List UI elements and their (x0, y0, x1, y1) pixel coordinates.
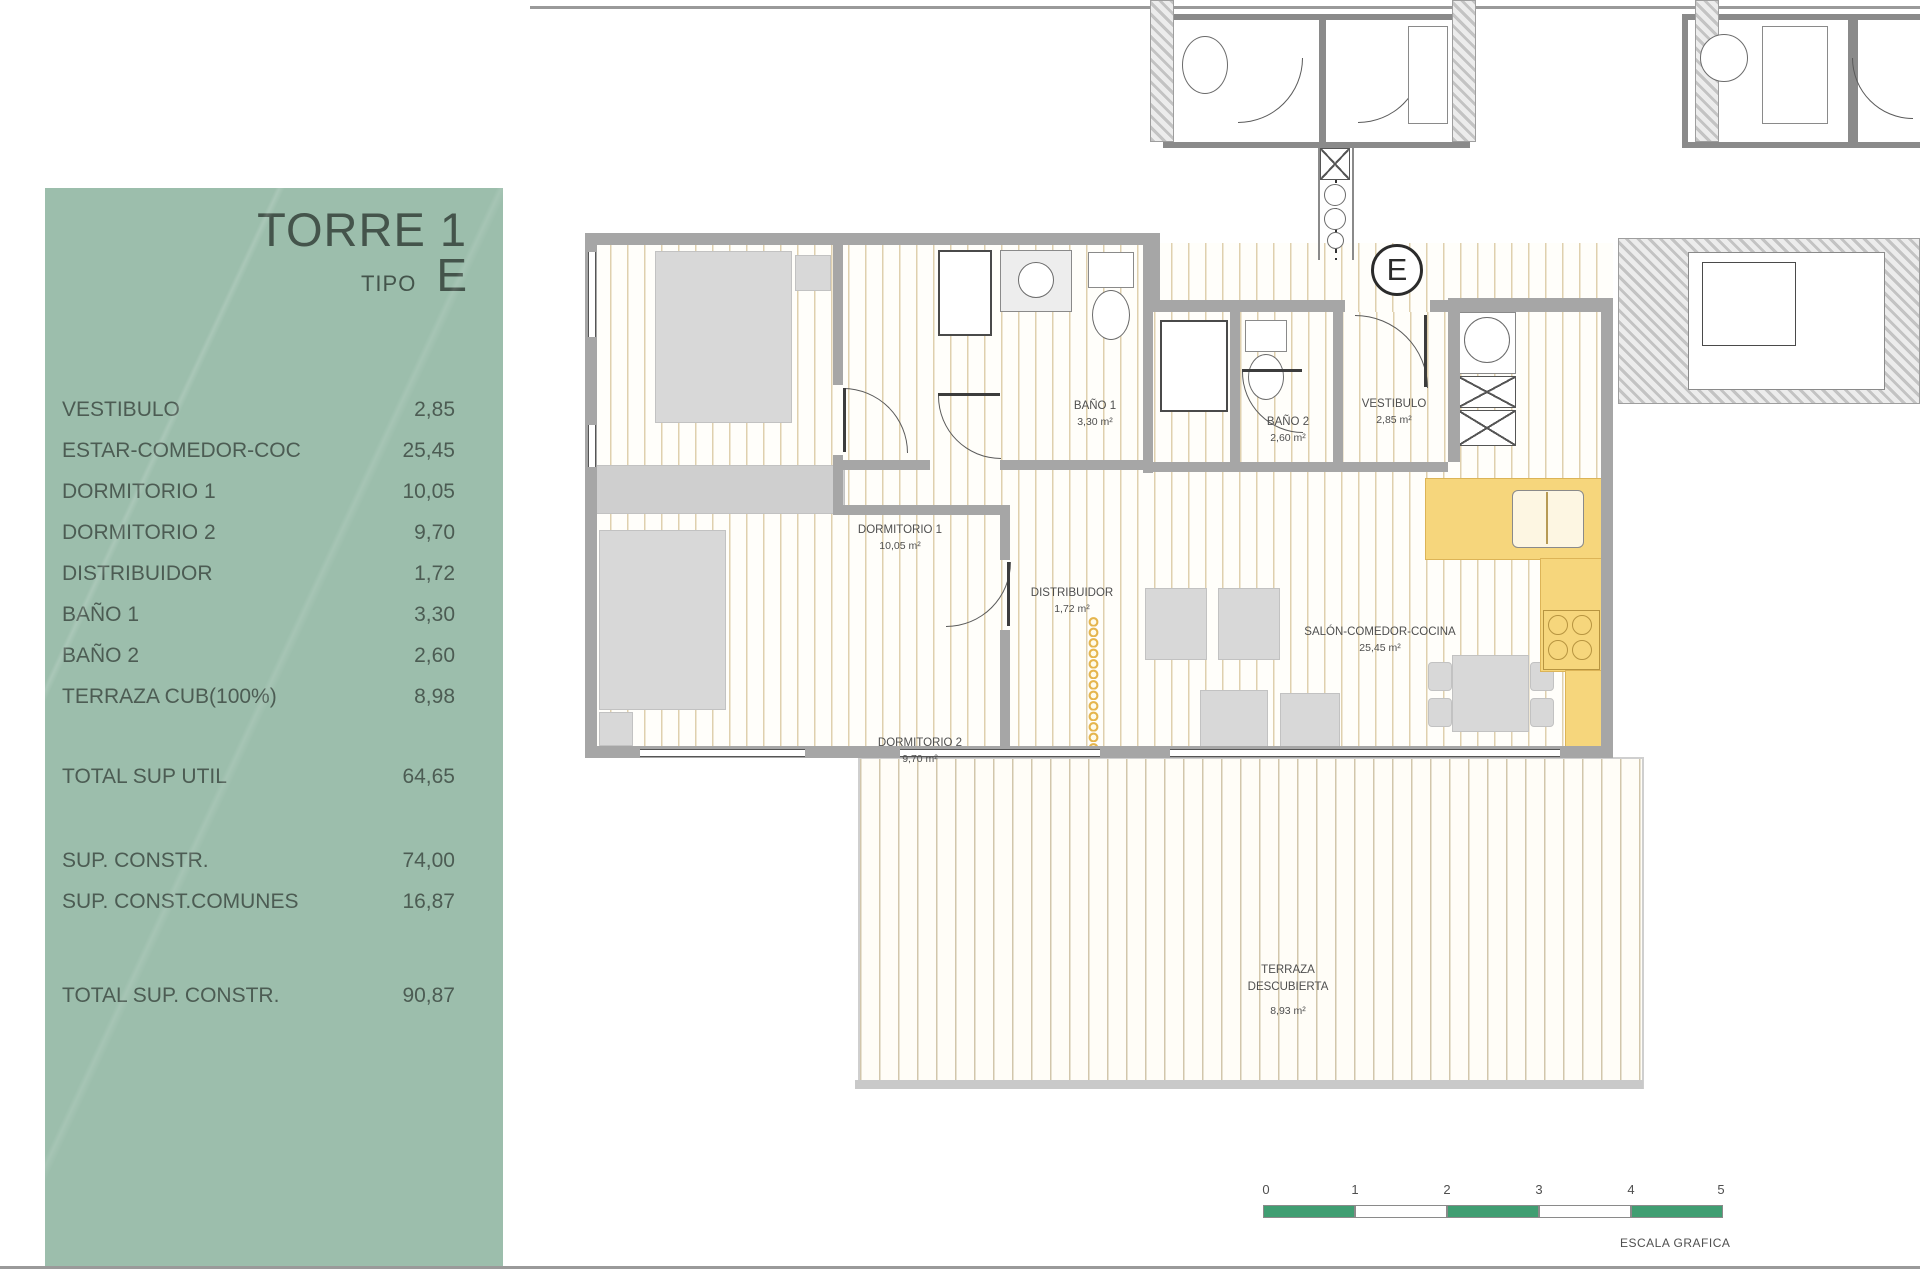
wall-kitchen-n (1448, 298, 1613, 312)
room-label-distribuidor: DISTRIBUIDOR 1,72 m² (1031, 585, 1113, 618)
row-label: TOTAL SUP UTIL (62, 765, 227, 789)
sup-constr-row: SUP. CONSTR. 74,00 (62, 849, 455, 873)
area-row: ESTAR-COMEDOR-COC 25,45 (62, 439, 455, 463)
radiator (1086, 616, 1101, 746)
door-leaf (938, 393, 1000, 396)
cooktop-burner (1572, 615, 1592, 635)
row-value: 64,65 (402, 765, 455, 789)
duct-pipe (1324, 184, 1346, 206)
area-row: BAÑO 1 3,30 (62, 603, 455, 627)
neighbour-sink (1700, 34, 1748, 82)
row-value: 2,85 (414, 398, 455, 422)
cooktop-burner (1548, 615, 1568, 635)
row-value: 3,30 (414, 603, 455, 627)
tipo-value: E (436, 248, 467, 302)
scale-segment (1263, 1205, 1355, 1218)
neighbour-washer (1762, 26, 1828, 124)
dining-table (1452, 655, 1529, 732)
wall-east (1601, 310, 1613, 758)
nightstand (795, 255, 831, 291)
scale-tick: 5 (1717, 1182, 1724, 1197)
scale-tick: 4 (1627, 1182, 1634, 1197)
scale-tick: 1 (1351, 1182, 1358, 1197)
duct-box (1320, 148, 1350, 180)
door-leaf (1424, 315, 1427, 387)
row-value: 10,05 (402, 480, 455, 504)
room-label-salon: SALÓN-COMEDOR-COCINA 25,45 m² (1304, 624, 1455, 657)
total-util-row: TOTAL SUP UTIL 64,65 (62, 765, 455, 789)
area-row: VESTIBULO 2,85 (62, 398, 455, 422)
row-label: TOTAL SUP. CONSTR. (62, 984, 279, 1008)
row-value: 90,87 (402, 984, 455, 1008)
wall-bath1-s (1000, 460, 1153, 470)
wall-bath2-w (1230, 312, 1240, 462)
neighbour-fixture (1408, 26, 1448, 124)
room-label-vestibulo: VESTIBULO 2,85 m² (1362, 396, 1427, 429)
kitchen-sink (1512, 490, 1584, 548)
cooktop-burner (1548, 640, 1568, 660)
row-label: TERRAZA CUB(100%) (62, 685, 277, 709)
room-label-bath2: BAÑO 2 2,60 m² (1267, 414, 1309, 447)
scale-tick: 0 (1262, 1182, 1269, 1197)
bed-2 (599, 530, 726, 710)
row-label: DORMITORIO 1 (62, 480, 216, 504)
row-value: 2,60 (414, 644, 455, 668)
terrace-edge (855, 1080, 1643, 1089)
unit-letter: E (1387, 252, 1408, 288)
unit-letter-badge: E (1371, 244, 1423, 296)
wall-vestibule-e (1448, 312, 1460, 462)
row-value: 8,98 (414, 685, 455, 709)
coffee-table (1200, 690, 1268, 754)
wardrobe (593, 465, 845, 514)
dining-chair (1530, 698, 1554, 727)
area-row: DORMITORIO 2 9,70 (62, 521, 455, 545)
duct-pipe (1324, 208, 1346, 230)
door-leaf (1007, 562, 1010, 626)
scale-caption: ESCALA GRAFICA (1620, 1236, 1730, 1250)
wall-bath2-e (1333, 312, 1343, 462)
tipo-label: TIPO (361, 271, 416, 297)
wall-bath1-e (1143, 243, 1153, 473)
wall-bath1-s (843, 460, 930, 470)
window (588, 425, 596, 467)
party-wall (1150, 0, 1174, 142)
armchair (1145, 588, 1207, 660)
row-label: DISTRIBUIDOR (62, 562, 213, 586)
row-value: 25,45 (402, 439, 455, 463)
room-label-dorm1: DORMITORIO 1 10,05 m² (858, 522, 942, 555)
panel-tipo-row: TIPO E (45, 248, 467, 302)
row-label: VESTIBULO (62, 398, 180, 422)
wall-bed2 (1000, 630, 1010, 756)
door-leaf (1242, 369, 1302, 372)
room-label-dorm2: DORMITORIO 2 9,70 m² (878, 735, 962, 768)
sheet-bottom-rule (0, 1266, 1920, 1269)
door-leaf (843, 388, 846, 452)
bed-1 (655, 251, 792, 423)
wall-bed2 (1000, 512, 1010, 560)
area-row: DORMITORIO 1 10,05 (62, 480, 455, 504)
dining-chair (1428, 698, 1452, 727)
wall-bed1 (833, 455, 843, 512)
area-row: DISTRIBUIDOR 1,72 (62, 562, 455, 586)
kitchen-counter (1565, 670, 1603, 750)
row-label: SUP. CONST.COMUNES (62, 890, 299, 914)
kitchen-sink-divider (1546, 492, 1548, 544)
elevator-car (1702, 262, 1796, 346)
wall-north (585, 233, 1160, 245)
info-panel: TORRE 1 TIPO E VESTIBULO 2,85 ESTAR-COME… (45, 188, 503, 1266)
room-label-bath1: BAÑO 1 3,30 m² (1074, 398, 1116, 431)
scale-segment (1355, 1205, 1447, 1218)
area-row: TERRAZA CUB(100%) 8,98 (62, 685, 455, 709)
window (588, 252, 596, 337)
total-constr-row: TOTAL SUP. CONSTR. 90,87 (62, 984, 455, 1008)
area-row: BAÑO 2 2,60 (62, 644, 455, 668)
wall-corridor (1148, 300, 1345, 312)
washer-drum (1464, 317, 1510, 363)
toilet-tank-1 (1088, 252, 1134, 288)
scale-tick: 2 (1443, 1182, 1450, 1197)
armchair (1218, 588, 1280, 660)
terrace-floor (858, 757, 1644, 1089)
row-label: BAÑO 2 (62, 644, 139, 668)
row-label: DORMITORIO 2 (62, 521, 216, 545)
row-value: 16,87 (402, 890, 455, 914)
nightstand (599, 712, 633, 746)
oven (1458, 410, 1516, 446)
shower-1 (938, 250, 992, 336)
neighbour-tub (1182, 36, 1228, 94)
wall-bed2-n (833, 505, 1010, 515)
duct-pipe (1327, 232, 1344, 249)
scale-segment (1631, 1205, 1723, 1218)
scale-segment (1447, 1205, 1539, 1218)
shower-2 (1160, 320, 1228, 412)
row-value: 74,00 (402, 849, 455, 873)
basin-bowl (1018, 262, 1054, 298)
toilet-tank-2 (1245, 320, 1287, 352)
scale-tick: 3 (1535, 1182, 1542, 1197)
dishwasher (1458, 376, 1516, 408)
row-value: 1,72 (414, 562, 455, 586)
wall-salon-n (1153, 462, 1448, 472)
row-label: SUP. CONSTR. (62, 849, 209, 873)
window (640, 749, 805, 757)
scale-segment (1539, 1205, 1631, 1218)
window (1170, 749, 1560, 757)
row-value: 9,70 (414, 521, 455, 545)
room-label-terraza: TERRAZA DESCUBIERTA 8,93 m² (1248, 962, 1329, 1019)
toilet-1 (1092, 290, 1130, 340)
row-label: BAÑO 1 (62, 603, 139, 627)
floorplan-sheet: TORRE 1 TIPO E VESTIBULO 2,85 ESTAR-COME… (0, 0, 1920, 1280)
row-label: ESTAR-COMEDOR-COC (62, 439, 301, 463)
cooktop-burner (1572, 640, 1592, 660)
party-wall (1452, 0, 1476, 142)
dining-chair (1428, 662, 1452, 691)
wall-bed1 (833, 243, 843, 385)
sup-comunes-row: SUP. CONST.COMUNES 16,87 (62, 890, 455, 914)
